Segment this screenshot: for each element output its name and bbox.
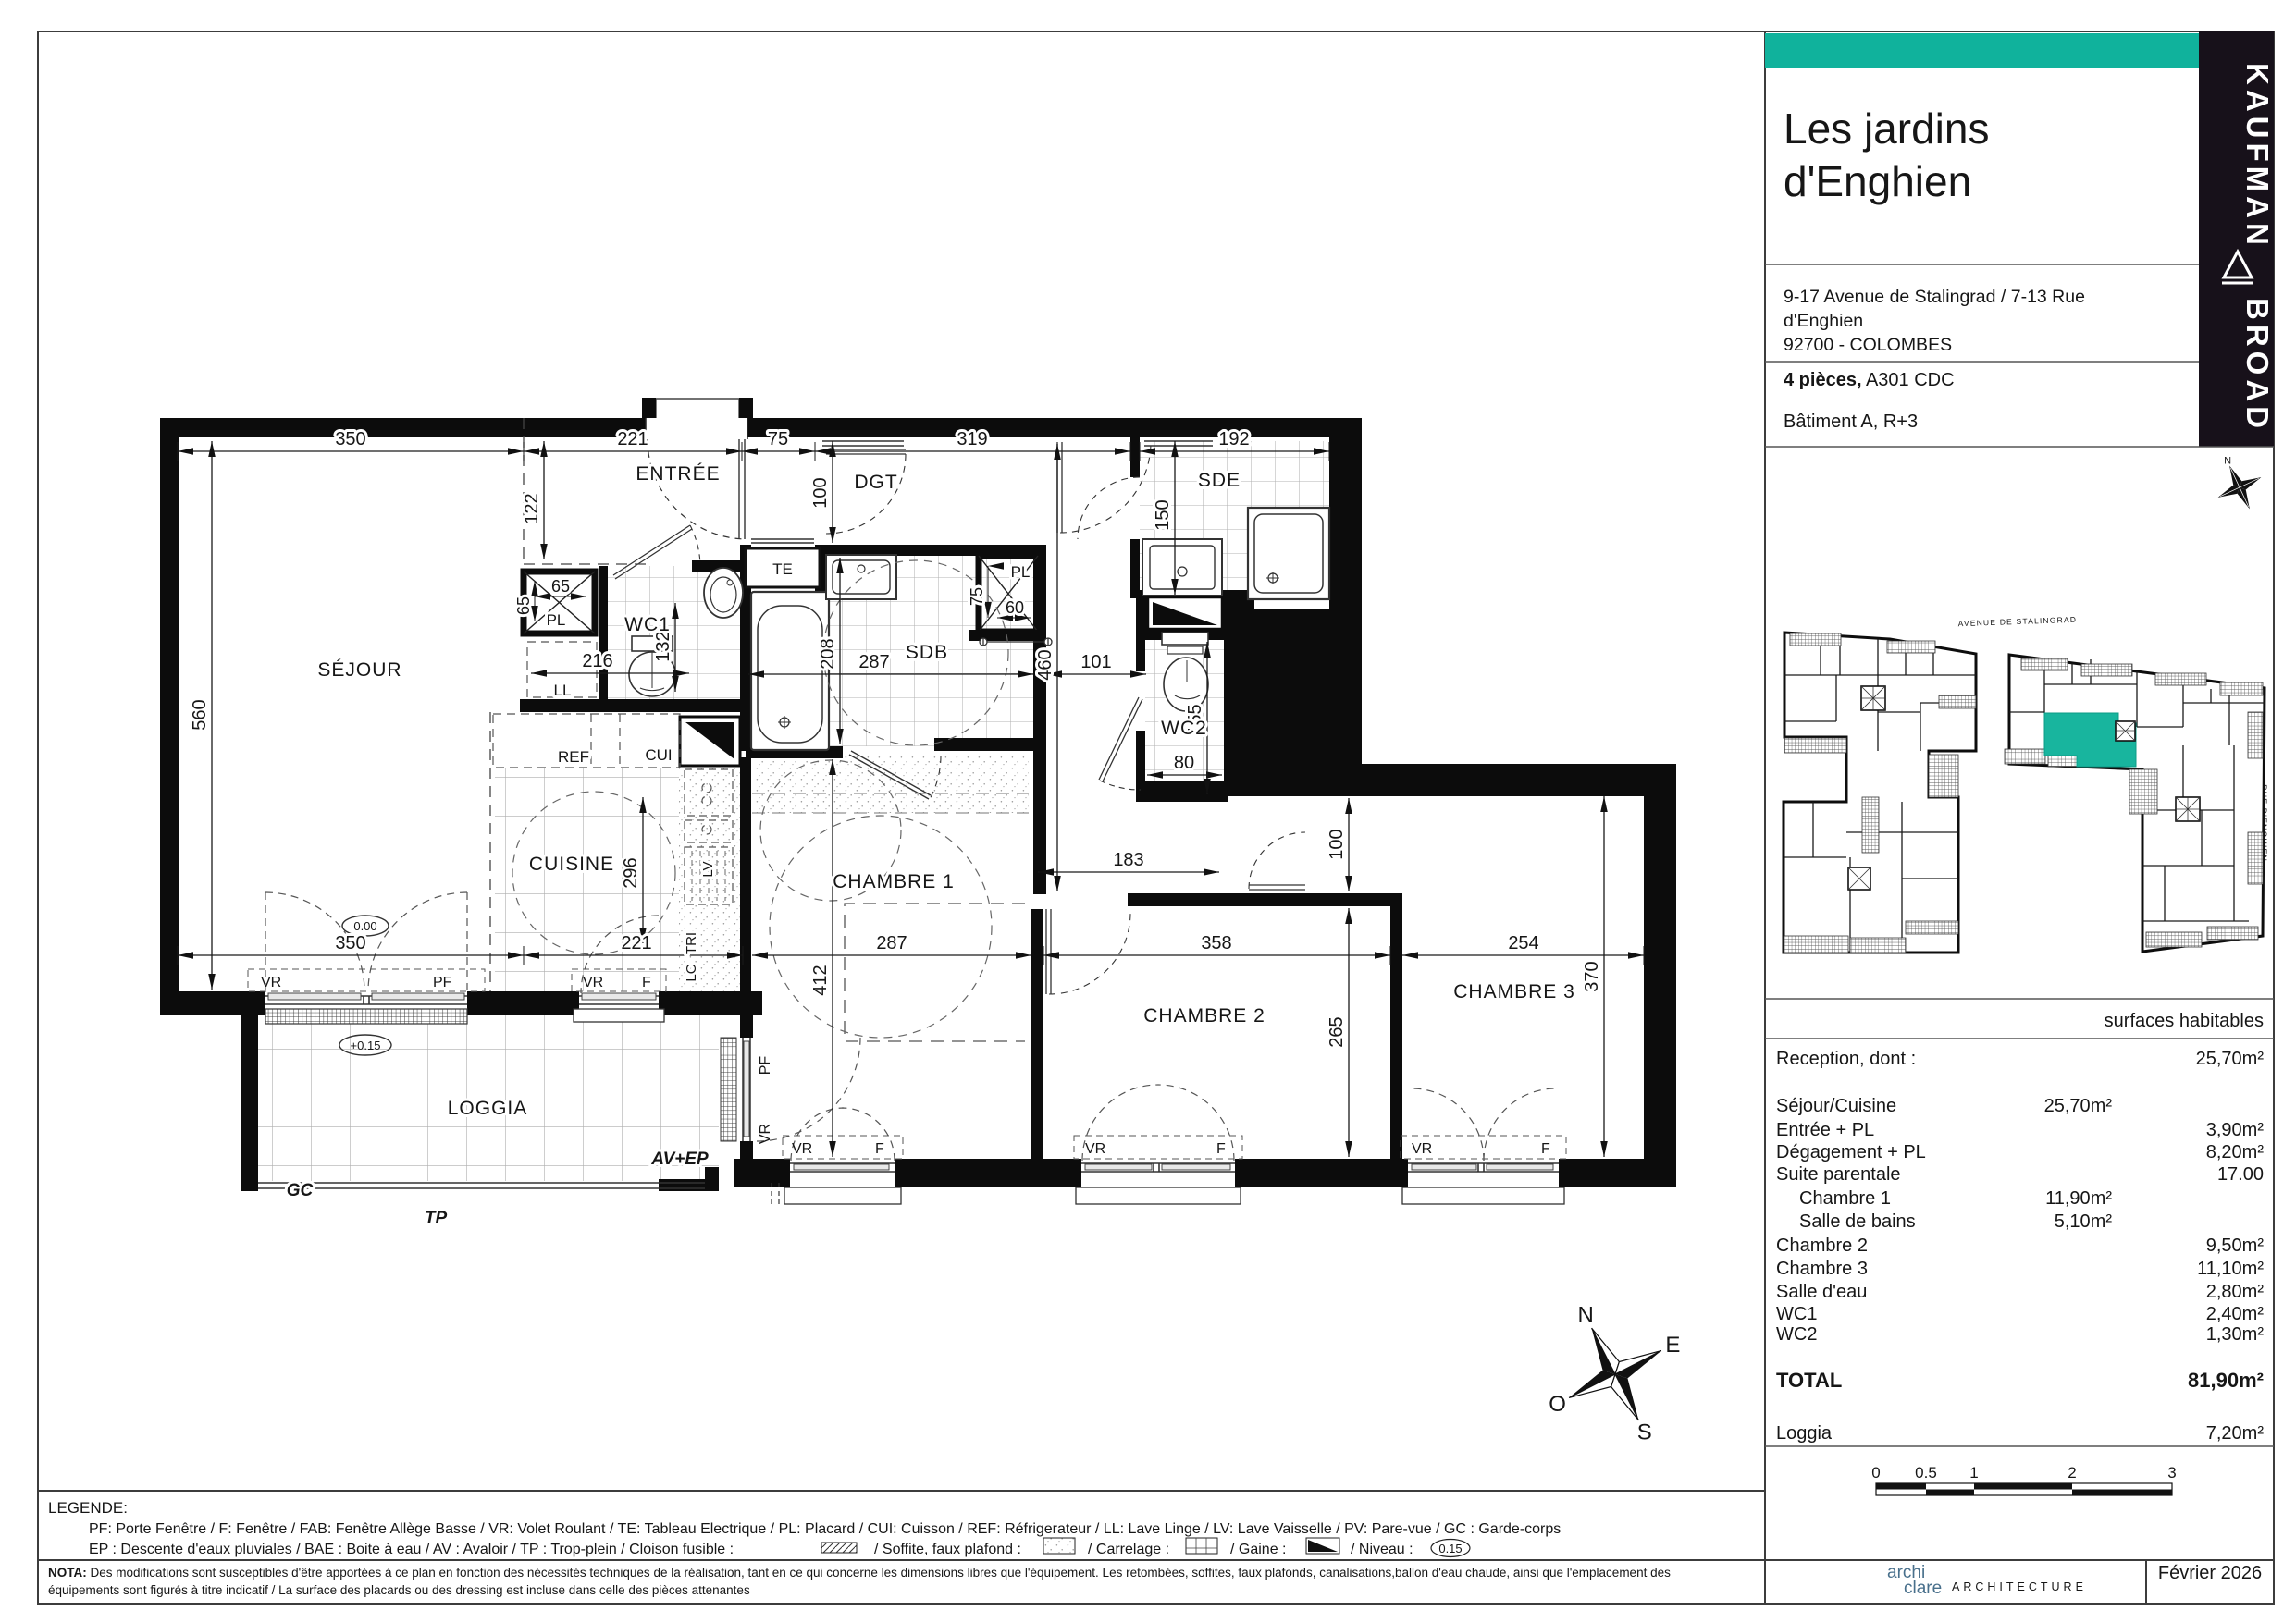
svg-text:2: 2	[2068, 1464, 2076, 1482]
svg-text:319: 319	[957, 429, 987, 449]
svg-text:100: 100	[810, 477, 831, 508]
svg-text:Reception, dont :: Reception, dont :	[1776, 1049, 1916, 1069]
svg-text:surfaces habitables: surfaces habitables	[2105, 1011, 2264, 1031]
svg-text:/ Carrelage :: / Carrelage :	[1088, 1542, 1169, 1557]
svg-text:80: 80	[1174, 753, 1194, 773]
svg-text:LC: LC	[684, 964, 699, 981]
svg-text:150: 150	[1153, 499, 1173, 530]
svg-text:+0.15: +0.15	[351, 1039, 381, 1052]
svg-text:92700 - COLOMBES: 92700 - COLOMBES	[1784, 335, 1952, 355]
svg-text:AVENUE DE STALINGRAD: AVENUE DE STALINGRAD	[1957, 615, 2077, 628]
svg-text:CHAMBRE 1: CHAMBRE 1	[833, 871, 955, 892]
svg-text:/ Gaine :: / Gaine :	[1230, 1542, 1286, 1557]
svg-text:122: 122	[522, 493, 542, 523]
svg-text:216: 216	[582, 651, 612, 671]
svg-text:PL: PL	[547, 611, 566, 629]
svg-text:Loggia: Loggia	[1776, 1423, 1833, 1444]
svg-text:VR: VR	[758, 1124, 773, 1144]
svg-text:/ Niveau :: / Niveau :	[1351, 1542, 1413, 1557]
svg-text:1: 1	[1969, 1464, 1978, 1482]
svg-text:S: S	[1637, 1420, 1652, 1445]
svg-text:/ Soffite, faux plafond :: / Soffite, faux plafond :	[874, 1542, 1021, 1557]
svg-text:Séjour/Cuisine: Séjour/Cuisine	[1776, 1096, 1896, 1116]
svg-text:1,30m²: 1,30m²	[2206, 1324, 2265, 1345]
svg-text:KAUFMAN: KAUFMAN	[2240, 63, 2275, 250]
svg-text:PF: PF	[758, 1056, 773, 1076]
svg-text:265: 265	[1327, 1016, 1347, 1047]
svg-text:LOGGIA: LOGGIA	[448, 1098, 528, 1119]
svg-text:Février 2026: Février 2026	[2158, 1563, 2262, 1583]
svg-text:F: F	[1541, 1141, 1550, 1157]
svg-text:Chambre 1: Chambre 1	[1799, 1188, 1891, 1209]
svg-text:WC2: WC2	[1776, 1324, 1817, 1345]
svg-text:ARCHITECTURE: ARCHITECTURE	[1952, 1580, 2087, 1593]
svg-text:2,40m²: 2,40m²	[2206, 1304, 2265, 1324]
svg-text:81,90m²: 81,90m²	[2188, 1369, 2264, 1392]
svg-text:221: 221	[617, 429, 648, 449]
svg-text:Salle d'eau: Salle d'eau	[1776, 1282, 1867, 1302]
svg-text:Les jardins: Les jardins	[1784, 105, 1989, 153]
svg-text:Chambre 3: Chambre 3	[1776, 1259, 1868, 1279]
svg-text:350: 350	[335, 933, 365, 953]
svg-text:équipements sont figurés à tit: équipements sont figurés à titre indicat…	[48, 1583, 750, 1597]
svg-text:287: 287	[876, 933, 907, 953]
svg-text:BROAD: BROAD	[2240, 298, 2275, 433]
svg-text:Dégagement + PL: Dégagement + PL	[1776, 1142, 1926, 1162]
svg-text:N: N	[2224, 455, 2231, 466]
svg-text:F: F	[1216, 1141, 1226, 1157]
svg-text:75: 75	[968, 587, 986, 606]
svg-text:VR: VR	[583, 975, 603, 990]
svg-text:11,10m²: 11,10m²	[2197, 1259, 2264, 1279]
svg-text:100: 100	[1327, 829, 1347, 859]
svg-text:358: 358	[1201, 933, 1231, 953]
svg-text:Suite parentale: Suite parentale	[1776, 1164, 1901, 1185]
svg-text:GC: GC	[287, 1181, 314, 1200]
svg-text:CHAMBRE 2: CHAMBRE 2	[1143, 1005, 1265, 1027]
svg-text:d'Enghien: d'Enghien	[1784, 311, 1863, 331]
svg-text:WC2: WC2	[1161, 718, 1207, 739]
svg-text:N: N	[1578, 1303, 1594, 1328]
svg-text:TE: TE	[772, 560, 793, 578]
svg-text:CUISINE: CUISINE	[529, 854, 614, 875]
svg-text:O: O	[1549, 1392, 1566, 1417]
svg-text:0.15: 0.15	[1438, 1542, 1462, 1555]
svg-text:25,70m²: 25,70m²	[2196, 1049, 2265, 1069]
svg-text:65: 65	[514, 596, 533, 615]
svg-text:132: 132	[653, 631, 673, 661]
svg-text:clare: clare	[1904, 1579, 1942, 1598]
svg-text:25,70m²: 25,70m²	[2044, 1096, 2113, 1116]
svg-text:0.00: 0.00	[353, 919, 376, 933]
svg-text:350: 350	[335, 429, 365, 449]
svg-text:CUI: CUI	[645, 746, 672, 764]
svg-text:Salle de bains: Salle de bains	[1799, 1211, 1916, 1232]
svg-text:17.00: 17.00	[2217, 1164, 2264, 1185]
svg-text:VR: VR	[1085, 1141, 1105, 1157]
svg-text:DGT: DGT	[854, 472, 897, 493]
svg-text:560: 560	[190, 699, 210, 730]
svg-text:VR: VR	[792, 1141, 812, 1157]
svg-text:LEGENDE:: LEGENDE:	[48, 1499, 128, 1517]
svg-text:9-17 Avenue de Stalingrad / 7-: 9-17 Avenue de Stalingrad / 7-13 Rue	[1784, 287, 2085, 307]
svg-text:2,80m²: 2,80m²	[2206, 1282, 2265, 1302]
svg-text:370: 370	[1582, 961, 1602, 991]
svg-text:254: 254	[1508, 933, 1538, 953]
svg-text:296: 296	[621, 857, 641, 888]
svg-text:LV: LV	[700, 861, 716, 877]
svg-text:E: E	[1665, 1333, 1680, 1358]
svg-text:192: 192	[1218, 429, 1249, 449]
svg-text:F: F	[875, 1141, 884, 1157]
svg-text:CHAMBRE 3: CHAMBRE 3	[1453, 981, 1575, 1002]
svg-text:PF: Porte Fenêtre / F: Fenêt: PF: Porte Fenêtre / F: Fenêtre / FAB: Fe…	[89, 1521, 1561, 1537]
svg-text:287: 287	[858, 652, 889, 672]
svg-text:75: 75	[768, 429, 788, 449]
svg-text:TOTAL: TOTAL	[1776, 1369, 1842, 1392]
svg-text:221: 221	[621, 933, 651, 953]
svg-text:VR: VR	[1412, 1141, 1432, 1157]
svg-text:LL: LL	[554, 682, 572, 699]
svg-text:3,90m²: 3,90m²	[2206, 1120, 2265, 1140]
svg-text:60: 60	[1006, 598, 1024, 617]
svg-text:WC1: WC1	[1776, 1304, 1817, 1324]
svg-text:AV+EP: AV+EP	[650, 1150, 709, 1169]
svg-text:TP: TP	[425, 1209, 448, 1228]
svg-text:TRI: TRI	[684, 932, 699, 954]
svg-text:REF: REF	[558, 748, 589, 766]
svg-text:65: 65	[551, 577, 570, 596]
svg-text:VR: VR	[261, 975, 281, 990]
svg-text:SDB: SDB	[906, 642, 948, 663]
svg-text:Bâtiment A, R+3: Bâtiment A, R+3	[1784, 412, 1918, 432]
svg-text:EP : Descente d'eaux pluviales: EP : Descente d'eaux pluviales / BAE : B…	[89, 1542, 734, 1557]
svg-text:7,20m²: 7,20m²	[2206, 1423, 2265, 1444]
svg-text:PF: PF	[433, 975, 452, 990]
svg-text:Chambre 2: Chambre 2	[1776, 1236, 1868, 1256]
svg-text:11,90m²: 11,90m²	[2045, 1188, 2112, 1209]
svg-text:PL: PL	[1011, 563, 1031, 581]
svg-text:208: 208	[818, 638, 838, 669]
svg-text:Entrée + PL: Entrée + PL	[1776, 1120, 1874, 1140]
svg-text:3: 3	[2167, 1464, 2176, 1482]
svg-text:ENTRÉE: ENTRÉE	[636, 463, 720, 485]
svg-text:4 pièces, A301 CDC: 4 pièces, A301 CDC	[1784, 370, 1955, 390]
svg-text:0: 0	[1871, 1464, 1880, 1482]
svg-text:WC1: WC1	[624, 614, 671, 635]
svg-text:SÉJOUR: SÉJOUR	[317, 659, 401, 681]
svg-text:9,50m²: 9,50m²	[2206, 1236, 2265, 1256]
svg-text:412: 412	[810, 965, 831, 995]
svg-text:0.5: 0.5	[1915, 1464, 1937, 1482]
svg-text:d'Enghien: d'Enghien	[1784, 157, 1971, 205]
svg-text:101: 101	[1080, 652, 1111, 672]
svg-text:8,20m²: 8,20m²	[2206, 1142, 2265, 1162]
svg-text:460: 460	[1035, 649, 1055, 680]
svg-text:5,10m²: 5,10m²	[2055, 1211, 2113, 1232]
svg-text:183: 183	[1113, 850, 1143, 870]
svg-text:F: F	[642, 975, 651, 990]
svg-text:SDE: SDE	[1198, 470, 1241, 491]
svg-text:NOTA: Des modifications sont: NOTA: Des modifications sont susceptible…	[48, 1566, 1671, 1580]
